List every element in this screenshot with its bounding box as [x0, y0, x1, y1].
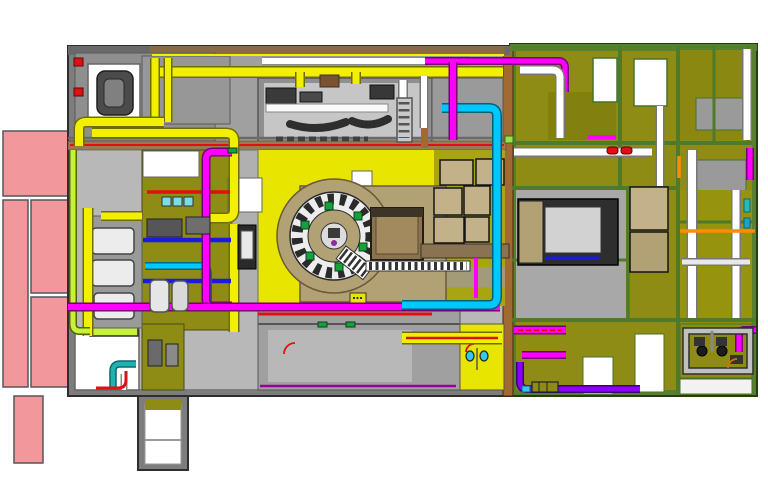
pump-1	[697, 346, 707, 356]
green-module-2	[335, 263, 343, 271]
red-wall-bit-1	[74, 58, 83, 66]
cabinet-panel	[241, 231, 253, 259]
truck-inner	[545, 207, 601, 253]
console-cluster-2	[300, 92, 322, 102]
pink-block-5	[14, 396, 43, 463]
equip-box-1	[147, 219, 182, 237]
hub-dot	[331, 240, 337, 246]
pink-block-1	[3, 131, 68, 196]
cyan-dot	[522, 386, 530, 392]
green-module-3	[306, 252, 314, 260]
equip-box-2	[186, 217, 210, 234]
pink-block-2	[3, 200, 28, 387]
pink-block-4	[31, 297, 68, 387]
rw-white-strip	[680, 379, 752, 394]
shield-crate-1	[434, 188, 462, 215]
shield-crate-5	[440, 160, 473, 185]
bench	[532, 382, 558, 392]
truck-tan-side	[519, 201, 543, 263]
brown-room-top	[371, 208, 423, 217]
green-pad	[505, 136, 513, 143]
shield-crate-3	[434, 217, 464, 243]
white-room-a	[143, 151, 199, 177]
rw-white-room-4	[635, 334, 664, 392]
toilet-1	[466, 351, 474, 361]
red-blob-1	[607, 147, 618, 154]
shield-crate-2	[464, 186, 490, 215]
green-module-5	[325, 202, 333, 210]
cable-ladder	[397, 98, 412, 142]
console-cluster-1	[266, 88, 296, 104]
sw-tank-1	[148, 340, 162, 366]
pink-block-3	[31, 200, 68, 293]
pump-box-1	[694, 337, 705, 346]
pump-box-2	[716, 337, 727, 346]
ahu-unit-2	[92, 260, 134, 286]
green-vent-1	[318, 322, 327, 327]
white-table	[266, 104, 388, 112]
green-module-6	[354, 212, 362, 220]
floorplan-svg	[0, 0, 768, 486]
sw-tank-2	[166, 344, 178, 366]
toilet-2	[480, 351, 488, 361]
crate-r2	[630, 232, 668, 272]
rw-top-wall	[510, 44, 757, 51]
red-wall-bit-2	[74, 88, 83, 96]
south-annex-floor	[145, 404, 181, 464]
hub-block	[328, 228, 340, 238]
shield-crate-4	[465, 217, 489, 242]
green-module-1	[359, 243, 367, 251]
rw-white-room-1	[593, 58, 617, 102]
tl-machine-face	[104, 79, 124, 107]
brown-box	[320, 75, 339, 87]
cyan-r1	[744, 199, 750, 212]
cyan-sink-2	[173, 197, 182, 206]
gray-room-1	[696, 98, 746, 130]
tank-2	[172, 281, 188, 311]
crate-r1	[630, 187, 668, 230]
green-vent-3	[228, 148, 237, 153]
brown-room-inner	[376, 214, 418, 254]
rw-white-room-2	[634, 59, 667, 106]
pump-2	[717, 346, 727, 356]
sw-white-room	[75, 330, 139, 390]
red-blob-2	[621, 147, 632, 154]
cyan-r2	[744, 218, 750, 228]
dark-desk	[370, 85, 394, 99]
south-gray-inner	[268, 330, 412, 382]
layer-annex	[3, 131, 68, 463]
cyan-sink-3	[184, 197, 193, 206]
cyan-sink-1	[162, 197, 171, 206]
bim-model-viewport	[0, 0, 768, 486]
ahu-unit-1	[92, 228, 134, 254]
green-vent-2	[346, 322, 355, 327]
south-annex-olive	[145, 399, 181, 410]
tank-1	[150, 280, 169, 312]
green-module-4	[301, 221, 309, 229]
